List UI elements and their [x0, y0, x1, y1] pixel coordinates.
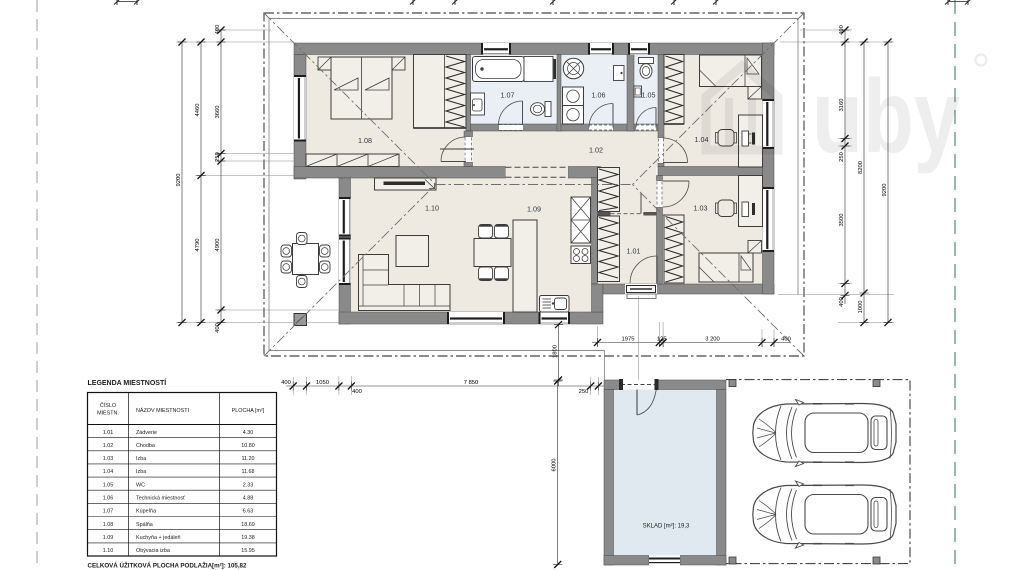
- svg-text:ČÍSLO: ČÍSLO: [100, 402, 116, 409]
- svg-text:4460: 4460: [195, 104, 201, 117]
- svg-text:400: 400: [781, 336, 791, 342]
- svg-text:1.05: 1.05: [103, 482, 114, 488]
- svg-text:1.09: 1.09: [527, 205, 541, 214]
- svg-text:1.07: 1.07: [103, 509, 114, 515]
- svg-text:Izba: Izba: [136, 469, 146, 475]
- svg-text:125: 125: [657, 336, 667, 342]
- svg-text:WC: WC: [136, 482, 145, 488]
- svg-text:CELKOVÁ ÚŽITKOVÁ PLOCHA PODLAŽ: CELKOVÁ ÚŽITKOVÁ PLOCHA PODLAŽIA[m²]: 10…: [88, 562, 247, 570]
- svg-text:1.03: 1.03: [694, 204, 708, 213]
- svg-text:PLOCHA [m²]: PLOCHA [m²]: [232, 408, 265, 414]
- svg-text:NÁZOV MIESTNOSTI: NÁZOV MIESTNOSTI: [136, 407, 189, 414]
- svg-text:400: 400: [839, 25, 845, 35]
- svg-text:4790: 4790: [195, 239, 201, 252]
- svg-text:11.68: 11.68: [241, 469, 254, 475]
- svg-text:18.69: 18.69: [241, 522, 255, 528]
- svg-text:Kúpeľňa: Kúpeľňa: [136, 509, 156, 515]
- svg-text:1.10: 1.10: [103, 548, 114, 554]
- svg-text:3500: 3500: [839, 214, 845, 227]
- svg-text:Obývacia izba: Obývacia izba: [136, 548, 170, 554]
- svg-text:3 200: 3 200: [705, 336, 720, 342]
- svg-text:Zádverie: Zádverie: [136, 430, 157, 436]
- svg-text:250: 250: [579, 389, 589, 395]
- svg-text:1.02: 1.02: [589, 146, 603, 155]
- svg-text:1.09: 1.09: [103, 535, 114, 541]
- svg-text:uby: uby: [812, 59, 960, 175]
- svg-text:Technická miestnosť: Technická miestnosť: [136, 496, 186, 502]
- svg-text:Izba: Izba: [136, 456, 146, 462]
- svg-text:1800: 1800: [552, 345, 558, 358]
- svg-text:1.08: 1.08: [103, 522, 114, 528]
- svg-text:1.05: 1.05: [642, 91, 656, 100]
- svg-text:15.95: 15.95: [241, 548, 255, 554]
- svg-text:1.10: 1.10: [425, 204, 439, 213]
- svg-text:1.01: 1.01: [103, 430, 114, 436]
- svg-text:1.04: 1.04: [103, 469, 114, 475]
- svg-text:9200: 9200: [176, 174, 182, 187]
- svg-text:SKLAD [m²]: 19,3: SKLAD [m²]: 19,3: [643, 524, 690, 530]
- svg-text:1.02: 1.02: [103, 443, 114, 449]
- svg-text:4900: 4900: [215, 239, 221, 252]
- svg-text:400: 400: [281, 380, 291, 386]
- svg-text:Chodba: Chodba: [136, 443, 155, 449]
- svg-text:250: 250: [215, 152, 221, 162]
- svg-text:6000: 6000: [552, 459, 558, 472]
- svg-text:1.08: 1.08: [358, 136, 372, 145]
- svg-text:7 850: 7 850: [464, 380, 479, 386]
- svg-text:6.63: 6.63: [243, 509, 254, 515]
- svg-text:4.30: 4.30: [243, 430, 254, 436]
- svg-text:1.07: 1.07: [501, 91, 515, 100]
- svg-text:1975: 1975: [622, 336, 635, 342]
- svg-text:4.88: 4.88: [243, 496, 254, 502]
- svg-text:MIESTN.: MIESTN.: [97, 411, 119, 417]
- svg-text:Kuchyňa + jedáleň: Kuchyňa + jedáleň: [136, 535, 181, 541]
- svg-text:400: 400: [352, 389, 362, 395]
- svg-text:9200: 9200: [882, 184, 888, 197]
- svg-text:LEGENDA MIESTNOSTÍ: LEGENDA MIESTNOSTÍ: [88, 378, 168, 387]
- svg-text:19.38: 19.38: [241, 535, 255, 541]
- svg-text:Spálňa: Spálňa: [136, 522, 153, 528]
- svg-text:1.06: 1.06: [103, 496, 114, 502]
- svg-text:3660: 3660: [215, 106, 221, 119]
- svg-text:2.33: 2.33: [243, 482, 254, 488]
- svg-text:10.80: 10.80: [241, 443, 255, 449]
- svg-text:400: 400: [839, 297, 845, 307]
- svg-text:1000: 1000: [858, 301, 864, 314]
- svg-text:400: 400: [215, 25, 221, 35]
- svg-text:1050: 1050: [316, 380, 329, 386]
- svg-text:1.03: 1.03: [103, 456, 114, 462]
- svg-text:1.06: 1.06: [592, 91, 606, 100]
- svg-text:400: 400: [215, 323, 221, 333]
- svg-text:11.20: 11.20: [241, 456, 254, 462]
- svg-text:1.01: 1.01: [627, 247, 641, 256]
